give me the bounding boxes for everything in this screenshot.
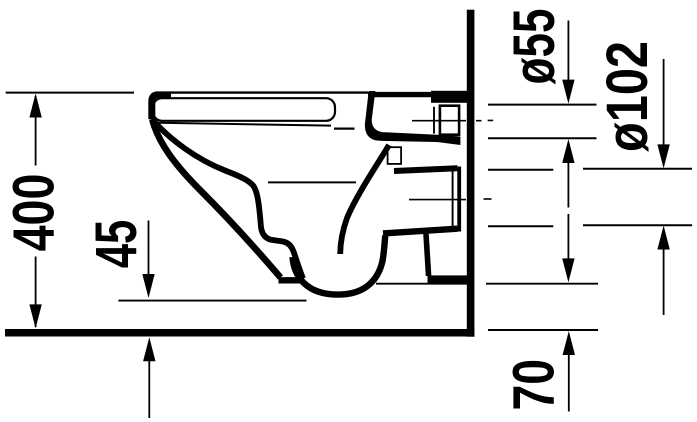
svg-text:70: 70 [501,359,566,411]
svg-text:ø55: ø55 [501,9,566,85]
svg-text:45: 45 [84,220,148,268]
svg-text:400: 400 [2,174,67,252]
svg-text:ø102: ø102 [596,41,660,152]
